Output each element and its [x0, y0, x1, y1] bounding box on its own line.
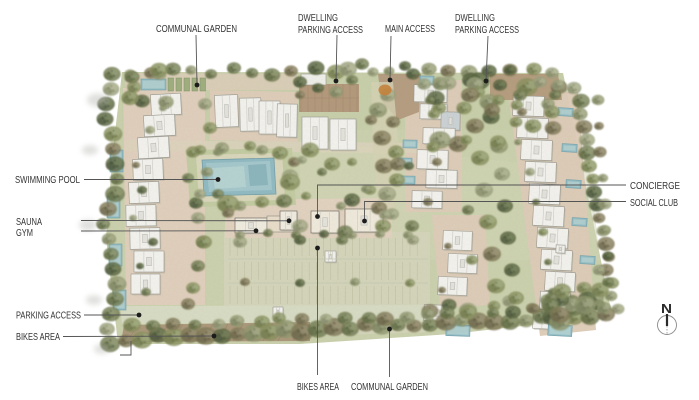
svg-text:SWIMMING POOL: SWIMMING POOL	[15, 175, 80, 186]
svg-text:BIKES AREA: BIKES AREA	[297, 382, 339, 393]
svg-text:COMMUNAL GARDEN: COMMUNAL GARDEN	[156, 24, 237, 35]
svg-text:SOCIAL CLUB: SOCIAL CLUB	[630, 198, 678, 209]
svg-text:SAUNA: SAUNA	[16, 217, 42, 228]
svg-text:PARKING ACCESS: PARKING ACCESS	[16, 311, 81, 322]
svg-text:CONCIERGE: CONCIERGE	[630, 181, 680, 192]
svg-text:GYM: GYM	[16, 228, 33, 239]
svg-text:DWELLING: DWELLING	[298, 13, 338, 24]
svg-text:PARKING ACCESS: PARKING ACCESS	[455, 25, 519, 36]
svg-text:COMMUNAL GARDEN: COMMUNAL GARDEN	[351, 382, 428, 393]
svg-text:BIKES AREA: BIKES AREA	[16, 332, 60, 343]
svg-text:DWELLING: DWELLING	[455, 13, 495, 24]
svg-text:MAIN ACCESS: MAIN ACCESS	[385, 24, 435, 35]
svg-text:N: N	[661, 302, 672, 316]
svg-text:PARKING ACCESS: PARKING ACCESS	[298, 25, 363, 36]
